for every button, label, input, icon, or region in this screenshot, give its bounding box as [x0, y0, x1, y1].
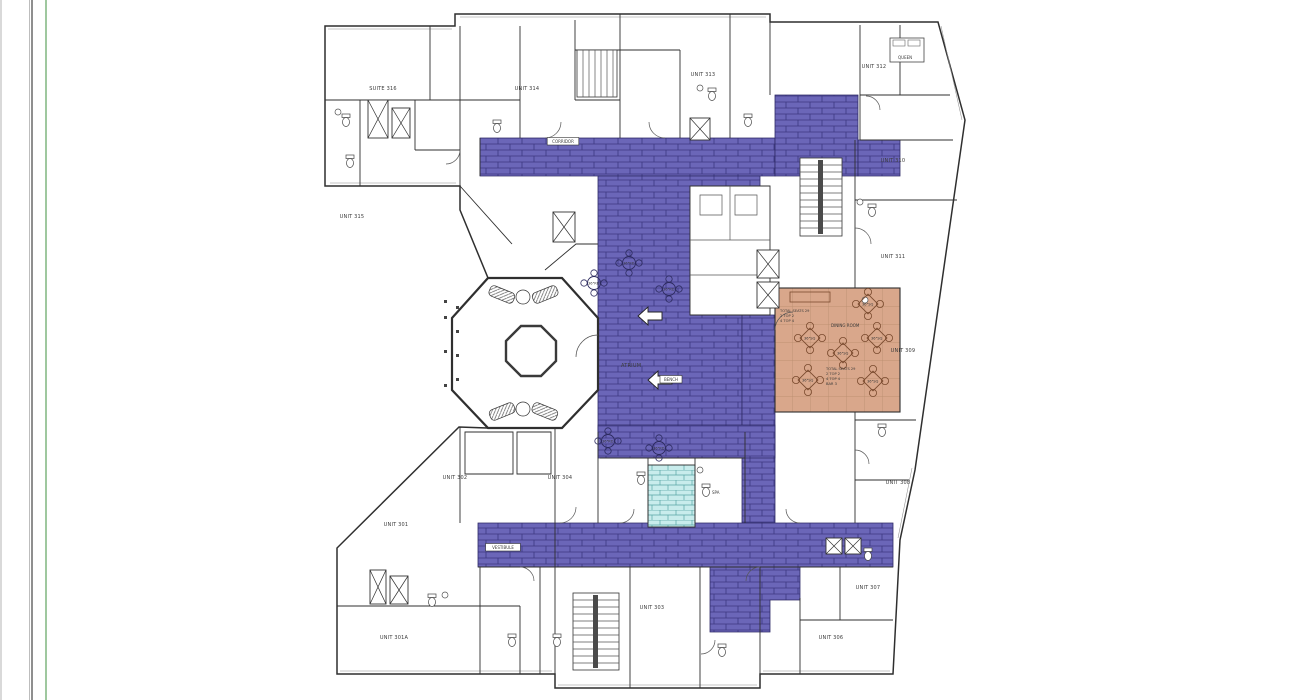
toilet-icon — [868, 204, 876, 217]
elevator-x-icon — [553, 212, 575, 242]
table-size-label: 36"SQ — [804, 337, 816, 341]
elevator-x-icon — [690, 118, 710, 140]
octagon-center-feature — [506, 326, 556, 376]
stair-icon — [573, 593, 619, 670]
corridor-below-atrium[interactable] — [598, 425, 775, 458]
boxed-room-label: BENCH — [660, 376, 682, 384]
stair-icon — [577, 50, 617, 97]
floor-plan-canvas: 36"SQ36"SQ36"SQ36"SQ36"SQ36"SQ36"RD36"RD… — [0, 0, 1290, 700]
toilet-icon — [744, 114, 752, 127]
toilet-icon — [708, 88, 716, 101]
boxed-room-label-text: CORRIDOR — [552, 139, 574, 144]
toilet-icon — [428, 594, 436, 607]
elevator-x-icon — [845, 538, 861, 554]
corridor-mid-right[interactable] — [742, 315, 775, 523]
table-size-label: 36"SQ — [862, 303, 874, 307]
queen-label: QUEEN — [898, 55, 912, 60]
toilet-icon — [346, 155, 354, 168]
toilet-icon — [637, 472, 645, 485]
elevator-x-icon — [757, 282, 779, 308]
elevator-x-icon — [370, 570, 386, 604]
dining-seating-note: 2 TOP 2 — [780, 314, 794, 318]
elevator-x-icon — [757, 250, 779, 278]
unit-label: UNIT 309 — [891, 348, 916, 354]
table-size-label: 36"SQ — [871, 337, 883, 341]
table-size-label: 36"SQ — [802, 379, 814, 383]
unit-label: UNIT 301A — [380, 635, 409, 641]
toilet-icon — [553, 634, 561, 647]
spa-room-highlight[interactable] — [648, 465, 695, 527]
toilet-icon — [702, 484, 710, 497]
dining-room-label: DINING ROOM — [831, 323, 860, 328]
spa-label: SPA — [712, 490, 720, 495]
toilet-icon — [718, 644, 726, 657]
unit-label: UNIT 306 — [819, 635, 844, 641]
sink-icon — [335, 109, 341, 115]
toilet-icon — [864, 548, 872, 561]
unit-label: UNIT 302 — [443, 475, 468, 481]
octagon-room — [444, 278, 598, 428]
elevator-x-icon — [392, 108, 410, 138]
toilet-icon — [493, 120, 501, 133]
unit-label: UNIT 314 — [515, 86, 540, 92]
sink-icon — [857, 199, 863, 205]
boxed-room-label-text: BENCH — [664, 377, 678, 382]
boxed-room-label: VESTIBULE — [486, 544, 521, 552]
boxed-room-label-text: VESTIBULE — [492, 545, 514, 550]
unit-label: UNIT 308 — [886, 480, 911, 486]
unit-label: UNIT 315 — [340, 214, 365, 220]
unit-label: SUITE 316 — [369, 86, 396, 92]
unit-label: UNIT 301 — [384, 522, 409, 528]
unit-label: UNIT 312 — [862, 64, 887, 70]
unit-label: UNIT 310 — [881, 158, 906, 164]
toilet-icon — [878, 424, 886, 437]
elevator-x-icon — [390, 576, 408, 604]
table-size-label: 36"RD — [602, 440, 614, 444]
dining-seating-note: TOTAL SEATS 29 — [825, 367, 856, 371]
sink-icon — [697, 467, 703, 473]
unit-label: UNIT 311 — [881, 254, 906, 260]
sink-icon — [442, 592, 448, 598]
dining-room-highlight[interactable] — [775, 288, 900, 412]
unit-label: UNIT 304 — [548, 475, 573, 481]
table-size-label: 36"RD — [663, 288, 675, 292]
corridor-top[interactable] — [480, 138, 775, 176]
dining-seating-note: 2 TOP 2 — [826, 372, 840, 376]
table-size-label: 36"RD — [623, 262, 635, 266]
table-size-label: 36"RD — [653, 447, 665, 451]
unit-label: UNIT 313 — [691, 72, 716, 78]
table-size-label: 36"SQ — [867, 380, 879, 384]
toilet-icon — [508, 634, 516, 647]
toilet-icon — [342, 114, 350, 127]
dining-seating-note: 4 TOP 4 — [826, 377, 841, 381]
sink-icon — [697, 85, 703, 91]
dining-seating-note: BAR 3 — [826, 382, 837, 386]
elevator-x-icon — [826, 538, 842, 554]
unit-label: UNIT 303 — [640, 605, 665, 611]
table-size-label: 36"SQ — [837, 352, 849, 356]
drawing-sheet: 36"SQ36"SQ36"SQ36"SQ36"SQ36"SQ36"RD36"RD… — [0, 0, 1290, 700]
atrium-label: ATRIUM — [621, 363, 641, 369]
boxed-room-label: CORRIDOR — [547, 138, 579, 146]
stair-icon — [800, 158, 842, 236]
unit-label: UNIT 307 — [856, 585, 881, 591]
dining-seating-note: TOTAL SEATS 29 — [779, 309, 810, 313]
table-size-label: 36"RD — [588, 282, 600, 286]
dining-seating-note: 4 TOP 4 — [780, 319, 795, 323]
elevator-x-icon — [368, 100, 388, 138]
